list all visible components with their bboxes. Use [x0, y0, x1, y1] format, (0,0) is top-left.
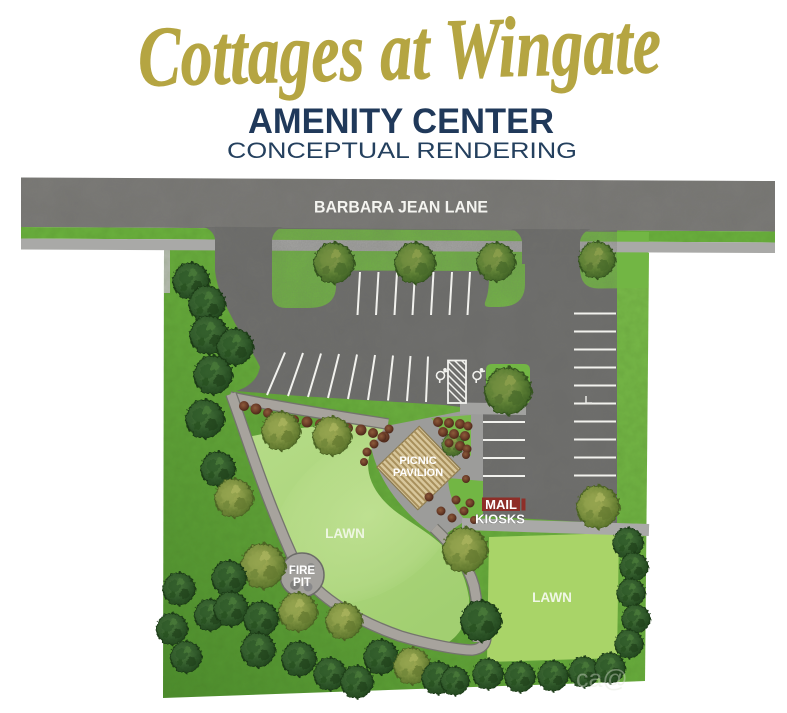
svg-text:PIT: PIT	[293, 577, 311, 589]
svg-text:MAIL: MAIL	[485, 497, 517, 512]
svg-text:PICNIC: PICNIC	[399, 455, 436, 467]
svg-text:AMENITY CENTER: AMENITY CENTER	[248, 102, 554, 141]
svg-text:LAWN: LAWN	[325, 526, 365, 541]
svg-text:ca@: ca@	[576, 665, 628, 693]
svg-text:Cottages at Wingate: Cottages at Wingate	[137, 0, 662, 105]
svg-text:PAVILION: PAVILION	[393, 467, 443, 479]
svg-text:KIOSKS: KIOSKS	[475, 512, 525, 527]
svg-text:LAWN: LAWN	[532, 590, 572, 605]
svg-text:CONCEPTUAL RENDERING: CONCEPTUAL RENDERING	[227, 138, 577, 163]
svg-text:FIRE: FIRE	[289, 565, 316, 577]
svg-text:BARBARA JEAN LANE: BARBARA JEAN LANE	[314, 198, 488, 217]
